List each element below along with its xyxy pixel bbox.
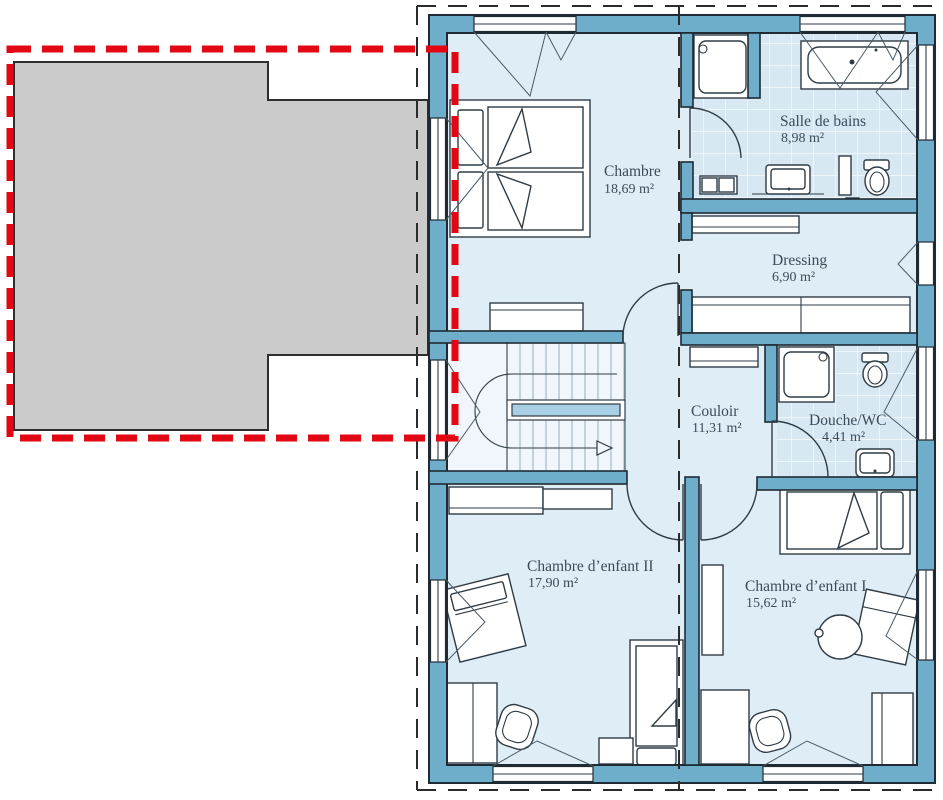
wall-stair-bottom — [429, 471, 627, 484]
shower-inner — [784, 352, 829, 397]
floor-plan-page: Chambre 18,69 m² Salle de bains 8,98 m² … — [0, 0, 943, 800]
room-label-couloir: Couloir 11,31 m² — [691, 403, 742, 436]
wall-shower-pier — [748, 33, 760, 98]
dresser — [490, 303, 583, 331]
bathtub-inner — [808, 47, 901, 83]
room-name-douche-wc: Douche/WC — [809, 412, 886, 429]
single-bed-mattress — [636, 646, 677, 746]
toilet-bowl — [865, 167, 889, 195]
wall-bedroom-dressing-lower — [681, 290, 692, 333]
side-table-box — [702, 178, 717, 192]
wardrobe — [872, 693, 913, 765]
washbasin-inner — [771, 169, 805, 189]
washbasin-drain — [874, 470, 877, 473]
cabinet — [701, 690, 749, 764]
desk — [543, 489, 612, 509]
room-area-chambre-enfant-1: 15,62 m² — [746, 596, 796, 611]
wall-bedroom-dressing-upper — [681, 213, 692, 240]
room-area-dressing: 6,90 m² — [772, 270, 815, 285]
bed-pillow — [881, 492, 903, 549]
washbasin-drain — [788, 188, 791, 191]
roof-area-overlay — [14, 62, 428, 430]
desk-chair — [818, 615, 862, 659]
wardrobe — [447, 683, 497, 763]
bathtub-faucet — [875, 49, 878, 52]
closet-shelf-top — [692, 216, 799, 233]
room-name-chambre: Chambre — [604, 163, 661, 180]
wall-dressing-bottom — [681, 333, 917, 345]
room-area-chambre: 18,69 m² — [604, 182, 654, 197]
wall-showerwc-bottom — [757, 477, 917, 490]
bedside-table — [599, 738, 633, 764]
shower-inner — [699, 41, 746, 93]
desk-chair-knob — [815, 629, 823, 637]
hallway-furniture — [690, 347, 758, 367]
tall-cabinet — [702, 565, 723, 655]
bathtub-drain — [850, 60, 855, 65]
bed-pillow — [637, 748, 676, 765]
room-name-dressing: Dressing — [772, 252, 827, 269]
side-table-box — [719, 178, 734, 192]
room-name-salle-de-bains: Salle de bains — [780, 113, 866, 130]
stair-railing — [512, 404, 620, 416]
room-area-salle-de-bains: 8,98 m² — [781, 131, 824, 146]
building: Chambre 18,69 m² Salle de bains 8,98 m² … — [429, 15, 935, 783]
wall-child-rooms-divider — [685, 477, 699, 765]
wall-bath-bottom — [681, 199, 917, 213]
room-name-chambre-enfant-1: Chambre d’enfant I — [745, 578, 866, 595]
toilet-bowl — [863, 361, 887, 387]
sideboard — [690, 347, 758, 367]
sideboard — [449, 487, 543, 514]
wall-bedroom-bath-upper — [681, 33, 693, 107]
tall-cabinet — [839, 156, 851, 195]
room-area-douche-wc: 4,41 m² — [822, 430, 865, 445]
wall-showerwc-left — [765, 345, 777, 422]
room-name-couloir: Couloir — [691, 403, 739, 420]
room-name-chambre-enfant-2: Chambre d’enfant II — [527, 558, 654, 575]
floor-plan-canvas: Chambre 18,69 m² Salle de bains 8,98 m² … — [0, 0, 943, 800]
room-area-chambre-enfant-2: 17,90 m² — [528, 576, 578, 591]
room-area-couloir: 11,31 m² — [692, 421, 742, 436]
